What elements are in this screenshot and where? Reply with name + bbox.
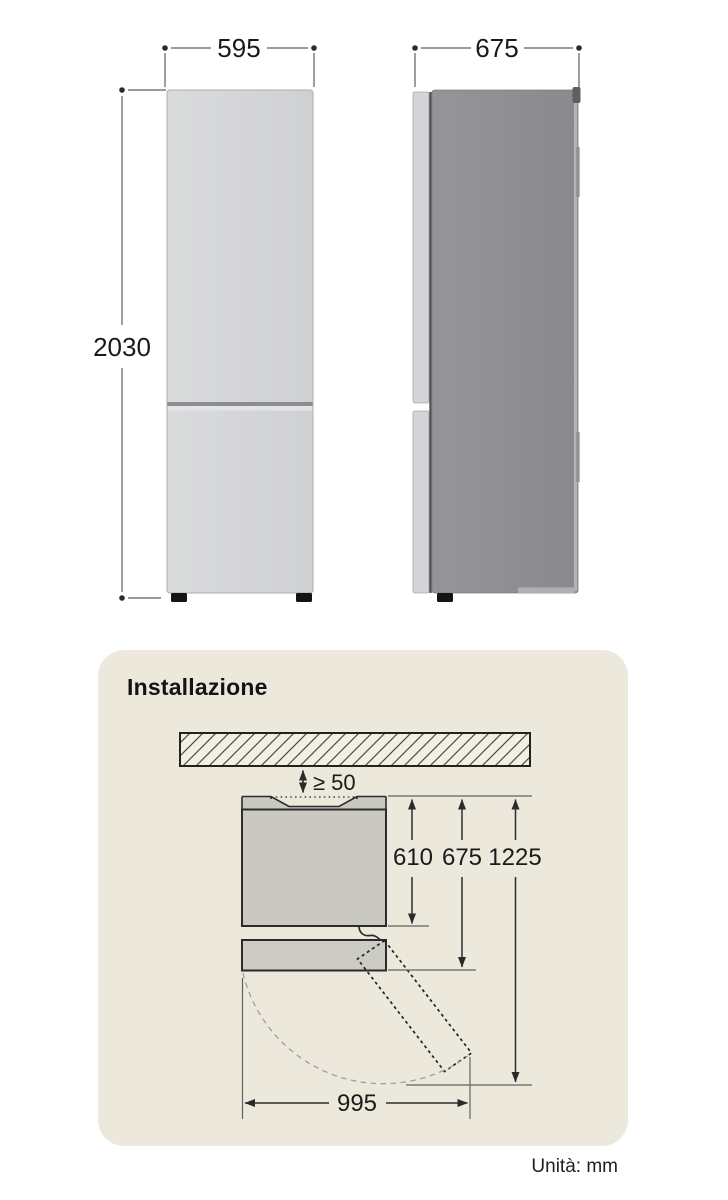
dim-dot (412, 45, 418, 51)
front-door-divider-light (168, 406, 313, 411)
wall-hatched-bar (180, 733, 530, 766)
side-top-hinge-tab (573, 87, 581, 103)
reference-lines (388, 796, 532, 1085)
dim-dot (119, 595, 125, 601)
open-door-depth-label: 1225 (488, 844, 541, 871)
clearance-dimension: ≥ 50 (303, 770, 356, 795)
dimension-front-width: 595 (162, 33, 317, 87)
body-depth-label: 610 (393, 844, 433, 871)
dim-dot (162, 45, 168, 51)
dim-dot (576, 45, 582, 51)
wall-hatch (180, 733, 530, 766)
door-swing-arc (243, 973, 468, 1084)
front-body (167, 90, 313, 593)
fridge-top-view (242, 797, 472, 1084)
front-foot-left (171, 593, 187, 602)
side-depth-label: 675 (475, 33, 518, 63)
dimension-front-height: 2030 (93, 87, 166, 601)
side-door-upper (413, 92, 429, 403)
side-foot (437, 593, 453, 602)
clearance-label: ≥ 50 (313, 770, 356, 795)
front-width-label: 595 (217, 33, 260, 63)
side-door-lower (413, 411, 429, 593)
dimension-open-door-width: 995 (243, 978, 471, 1119)
dim-dot (311, 45, 317, 51)
side-rear-bottom-recess (518, 588, 575, 594)
dim-dot (119, 87, 125, 93)
front-door-divider-dark (168, 402, 313, 406)
dimension-side-depth-top: 675 (412, 33, 582, 87)
side-rear-notch-upper (576, 147, 579, 197)
dimension-open-door-depth: 1225 (488, 800, 541, 1083)
top-view-back-fill (242, 797, 386, 811)
top-view-hinge-detail (359, 927, 381, 940)
side-door-gap (429, 92, 431, 593)
fridge-side-view (413, 87, 581, 602)
dimension-body-depth: 610 (393, 800, 433, 924)
product-dimensions-page: Installazione Unità: mm (0, 0, 728, 1200)
front-foot-right (296, 593, 312, 602)
dimension-total-depth: 675 (442, 800, 482, 968)
top-view-body (242, 810, 386, 927)
total-depth-label: 675 (442, 844, 482, 871)
open-door-width-label: 995 (337, 1090, 377, 1117)
dimensions-illustration: 595 675 2030 (0, 0, 728, 1200)
side-rear-notch-lower (576, 432, 579, 482)
front-height-label: 2030 (93, 332, 151, 362)
installation-diagram: ≥ 50 610 (180, 733, 542, 1119)
side-body (432, 90, 578, 593)
fridge-front-view (167, 90, 313, 602)
